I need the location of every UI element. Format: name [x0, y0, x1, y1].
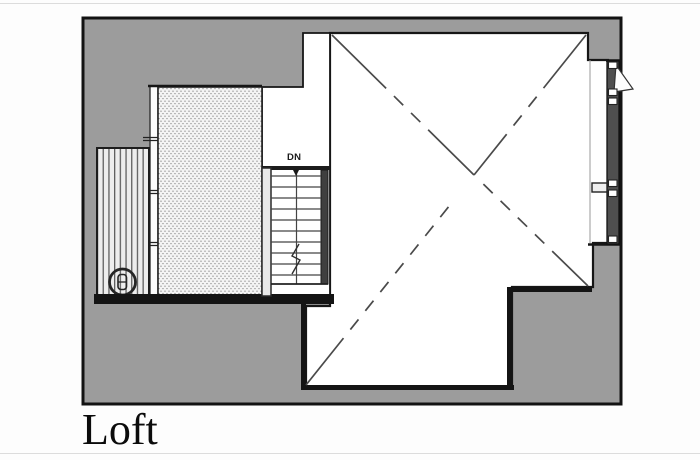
stair-wall-right [321, 170, 328, 284]
door-handle [592, 183, 607, 192]
stair-wall-left [262, 168, 271, 296]
plan-title: Loft [82, 408, 158, 452]
hinge-clip [609, 98, 618, 105]
door-swing-flag [614, 65, 633, 92]
stair-direction-label: DN [287, 152, 301, 163]
hinge-clip [609, 236, 618, 243]
hinge-clip [609, 89, 618, 96]
floorplan-canvas: DN Loft [0, 0, 700, 460]
floorplan-drawing: DN [0, 0, 700, 460]
hinge-clip [609, 190, 618, 197]
wall-thick-bottom-left [94, 294, 334, 304]
hinge-clip [609, 62, 618, 69]
loft-floor-carpet [158, 87, 262, 296]
hinge-clip [609, 180, 618, 187]
